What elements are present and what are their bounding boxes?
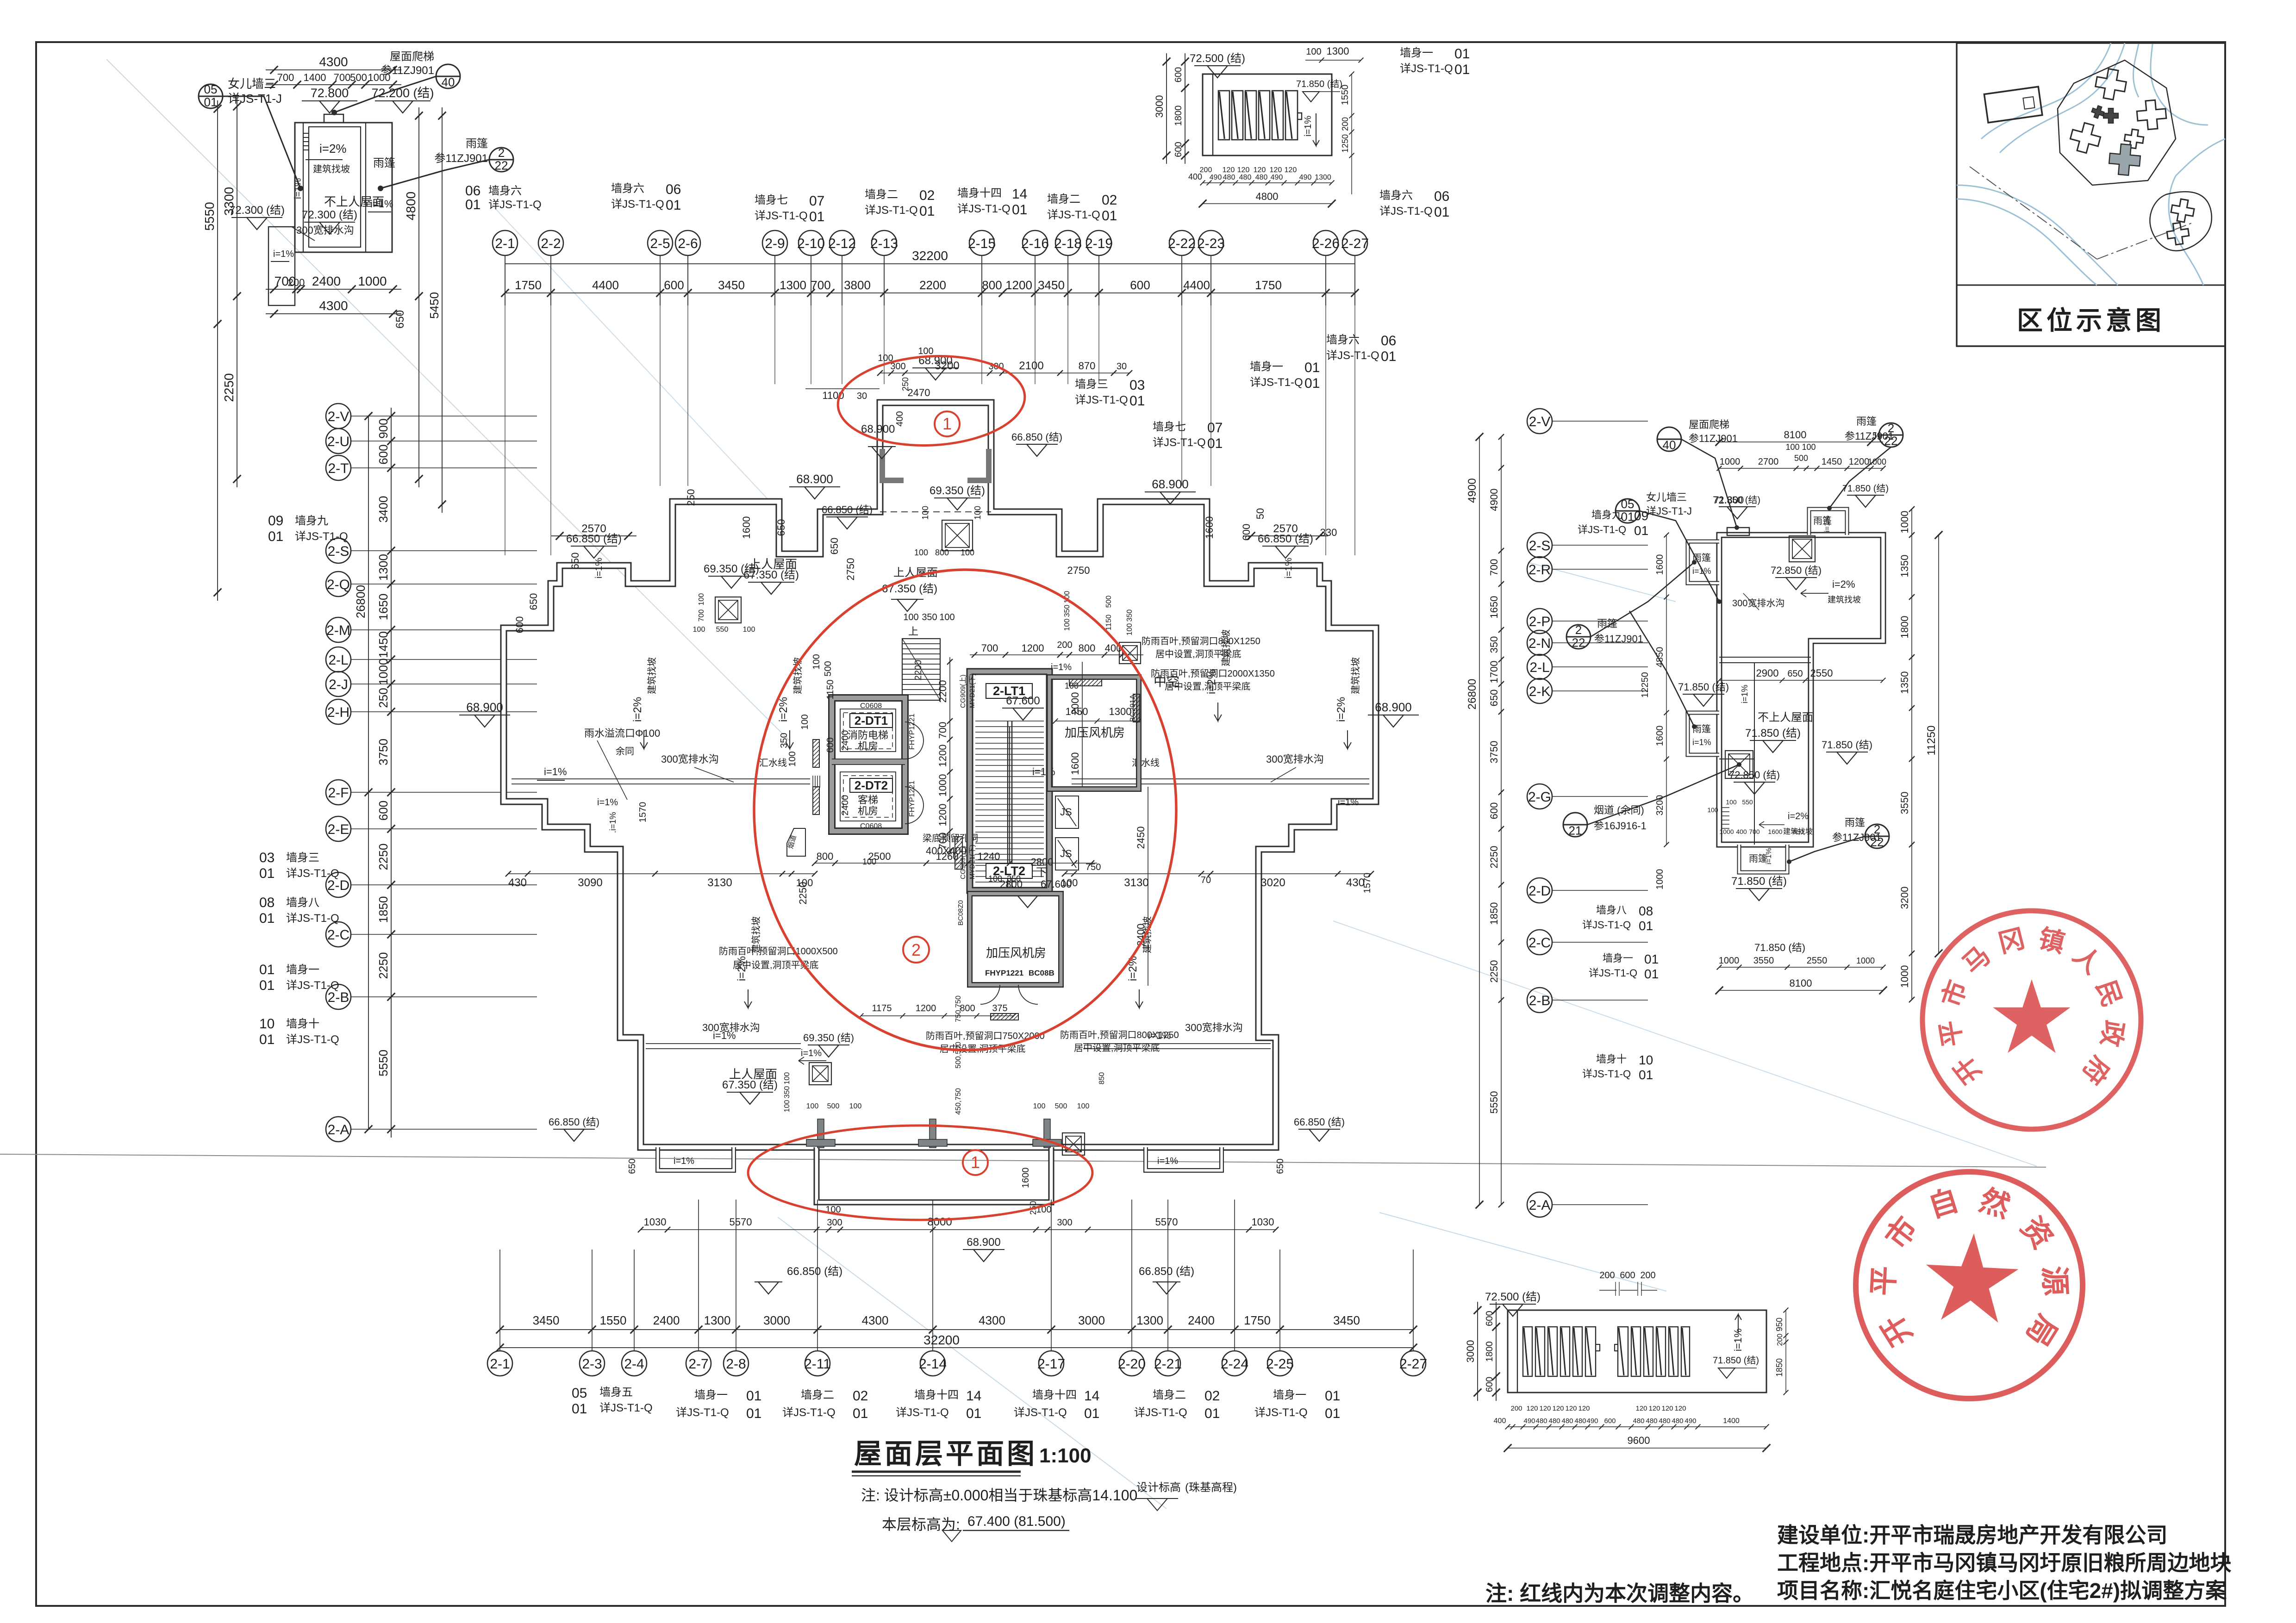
svg-text:2400: 2400 xyxy=(1188,1313,1215,1327)
svg-text:09: 09 xyxy=(1634,509,1648,523)
svg-text:100: 100 xyxy=(1707,806,1718,814)
svg-text:70: 70 xyxy=(1201,875,1211,885)
svg-text:120: 120 xyxy=(1674,1405,1686,1412)
svg-text:2-A: 2-A xyxy=(1529,1198,1551,1213)
svg-text:i=1%: i=1% xyxy=(1692,566,1711,576)
svg-text:2550: 2550 xyxy=(1807,956,1828,966)
svg-text:FHYP1221: FHYP1221 xyxy=(985,969,1023,977)
svg-text:120: 120 xyxy=(1565,1405,1577,1412)
svg-text:2-8: 2-8 xyxy=(726,1356,746,1372)
svg-text:详JS-T1-Q: 详JS-T1-Q xyxy=(286,979,339,992)
svg-text:100: 100 xyxy=(903,612,918,622)
svg-text:450,750: 450,750 xyxy=(955,1088,962,1115)
svg-text:2250: 2250 xyxy=(1488,960,1500,983)
svg-text:机房: 机房 xyxy=(858,740,878,752)
svg-text:2-U: 2-U xyxy=(327,434,349,449)
svg-text:2750: 2750 xyxy=(1067,565,1090,576)
svg-text:1300: 1300 xyxy=(780,278,806,292)
svg-text:2-1: 2-1 xyxy=(490,1356,510,1372)
svg-text:3130: 3130 xyxy=(1124,877,1148,889)
svg-text:1700: 1700 xyxy=(1488,661,1500,684)
svg-text:08: 08 xyxy=(259,895,275,910)
svg-text:i=1%: i=1% xyxy=(273,249,294,259)
svg-text:700: 700 xyxy=(1749,828,1760,835)
svg-text:CG909(上): CG909(上) xyxy=(959,674,967,708)
svg-text:120: 120 xyxy=(1648,1405,1660,1412)
svg-text:墙身一: 墙身一 xyxy=(286,964,319,976)
svg-text:120: 120 xyxy=(1526,1405,1538,1412)
svg-text:i=2%: i=2% xyxy=(319,142,347,155)
svg-text:墙身一: 墙身一 xyxy=(1273,1389,1306,1401)
svg-text:350: 350 xyxy=(783,1086,791,1099)
svg-text:墙身十四: 墙身十四 xyxy=(914,1389,959,1401)
svg-text:详JS-T1-Q: 详JS-T1-Q xyxy=(1582,919,1631,931)
svg-text:详JS-T1-Q: 详JS-T1-Q xyxy=(488,199,542,211)
svg-text:480: 480 xyxy=(1672,1417,1683,1425)
svg-text:350: 350 xyxy=(1063,605,1071,617)
svg-text:1450: 1450 xyxy=(1822,457,1842,467)
svg-text:01: 01 xyxy=(746,1388,761,1404)
svg-text:600: 600 xyxy=(1173,67,1184,82)
svg-text:650: 650 xyxy=(528,593,539,610)
svg-text:2200: 2200 xyxy=(937,680,948,703)
svg-text:2470: 2470 xyxy=(908,387,930,398)
svg-text:01: 01 xyxy=(919,204,935,219)
svg-text:100: 100 xyxy=(1063,619,1071,631)
svg-text:01: 01 xyxy=(1102,208,1117,224)
svg-text:1000: 1000 xyxy=(937,774,948,797)
svg-text:消防电梯: 消防电梯 xyxy=(848,729,888,741)
svg-text:详JS-T1-Q: 详JS-T1-Q xyxy=(1589,967,1637,979)
svg-text:i=1%: i=1% xyxy=(1765,848,1773,864)
svg-text:详JS-T1-Q: 详JS-T1-Q xyxy=(1379,205,1433,218)
svg-text:01: 01 xyxy=(1621,510,1635,523)
svg-text:墙身一: 墙身一 xyxy=(1250,361,1283,373)
svg-text:参11ZJ901: 参11ZJ901 xyxy=(434,152,488,165)
svg-text:200: 200 xyxy=(1776,1334,1784,1346)
svg-text:墙身一: 墙身一 xyxy=(1603,952,1633,964)
svg-text:100: 100 xyxy=(849,1102,862,1110)
svg-text:居中设置,洞顶平梁底: 居中设置,洞顶平梁底 xyxy=(1155,649,1242,659)
svg-text:11250: 11250 xyxy=(1925,726,1938,756)
svg-text:2-22: 2-22 xyxy=(1168,236,1196,251)
svg-text:800: 800 xyxy=(1079,642,1096,654)
svg-text:68.900: 68.900 xyxy=(466,700,503,714)
svg-text:2450: 2450 xyxy=(1135,827,1147,849)
svg-text:32200: 32200 xyxy=(912,249,948,263)
svg-text:5570: 5570 xyxy=(1155,1216,1178,1228)
svg-text:2-19: 2-19 xyxy=(1085,236,1113,251)
svg-text:2-V: 2-V xyxy=(1529,414,1551,429)
svg-text:2400: 2400 xyxy=(312,274,341,288)
svg-text:墙身十: 墙身十 xyxy=(286,1018,319,1030)
svg-text:i=2%: i=2% xyxy=(631,697,644,722)
svg-text:1240: 1240 xyxy=(978,851,1000,862)
svg-text:政: 政 xyxy=(2096,1019,2129,1049)
svg-text:480: 480 xyxy=(1561,1417,1573,1425)
svg-text:01: 01 xyxy=(853,1406,868,1421)
svg-text:2-N: 2-N xyxy=(1529,636,1551,651)
svg-text:01: 01 xyxy=(1644,967,1659,981)
svg-text:2-20: 2-20 xyxy=(1118,1356,1146,1372)
svg-text:i=1%: i=1% xyxy=(1051,662,1072,672)
svg-text:2-J: 2-J xyxy=(329,677,348,692)
svg-text:4300: 4300 xyxy=(862,1313,889,1327)
svg-text:详JS-T1-Q: 详JS-T1-Q xyxy=(755,210,808,222)
svg-text:03: 03 xyxy=(1129,378,1145,393)
svg-text:650: 650 xyxy=(394,310,406,329)
svg-text:3450: 3450 xyxy=(718,278,745,292)
svg-text:02: 02 xyxy=(853,1388,868,1404)
svg-text:详JS-T1-Q: 详JS-T1-Q xyxy=(1578,524,1626,535)
svg-text:3130: 3130 xyxy=(707,877,732,889)
svg-text:68.900: 68.900 xyxy=(796,472,833,486)
svg-text:1600: 1600 xyxy=(1655,554,1665,575)
svg-text:1850: 1850 xyxy=(376,896,390,923)
svg-text:1300: 1300 xyxy=(1109,706,1132,717)
svg-text:72.800: 72.800 xyxy=(311,86,349,100)
svg-text:2700: 2700 xyxy=(1758,457,1779,467)
svg-text:200: 200 xyxy=(1599,1270,1615,1281)
svg-text:01: 01 xyxy=(259,1032,275,1047)
svg-text:防雨百叶,预留洞口800X1250: 防雨百叶,预留洞口800X1250 xyxy=(1142,636,1260,647)
svg-text:2-23: 2-23 xyxy=(1197,236,1225,251)
svg-text:120: 120 xyxy=(1270,166,1282,174)
svg-text:71.850 (结): 71.850 (结) xyxy=(1713,1355,1759,1366)
svg-text:01: 01 xyxy=(1381,349,1396,364)
svg-text:1850: 1850 xyxy=(1775,1358,1784,1377)
svg-text:01: 01 xyxy=(259,911,275,926)
svg-text:3450: 3450 xyxy=(1333,1313,1360,1327)
svg-text:480: 480 xyxy=(1574,1417,1586,1425)
svg-text:墙身六: 墙身六 xyxy=(1326,334,1360,346)
svg-text:2200: 2200 xyxy=(913,660,923,681)
svg-text:14: 14 xyxy=(966,1388,981,1404)
svg-text:500: 500 xyxy=(1055,1102,1067,1110)
svg-text:参11ZJ901: 参11ZJ901 xyxy=(1689,433,1738,444)
svg-text:墙身八: 墙身八 xyxy=(1596,904,1627,916)
svg-text:i=1%: i=1% xyxy=(594,558,604,578)
svg-text:40: 40 xyxy=(1663,438,1676,452)
svg-text:详JS-T1-Q: 详JS-T1-Q xyxy=(1250,376,1303,389)
svg-text:工程地点:开平市马冈镇马冈圩原旧粮所周边地块: 工程地点:开平市马冈镇马冈圩原旧粮所周边地块 xyxy=(1777,1551,2231,1575)
svg-text:22: 22 xyxy=(495,158,508,172)
svg-text:详JS-T1-Q: 详JS-T1-Q xyxy=(1153,436,1206,449)
svg-text:2-1: 2-1 xyxy=(495,236,515,251)
svg-text:4800: 4800 xyxy=(1256,191,1279,202)
svg-text:02: 02 xyxy=(1102,193,1117,208)
svg-text:2-V: 2-V xyxy=(328,409,349,424)
svg-text:66.850 (结): 66.850 (结) xyxy=(549,1116,599,1128)
svg-text:480: 480 xyxy=(1646,1417,1657,1425)
svg-text:详JS-T1-Q: 详JS-T1-Q xyxy=(599,1402,653,1414)
svg-text:1300: 1300 xyxy=(1327,45,1349,57)
svg-text:700: 700 xyxy=(937,833,948,850)
svg-text:墙身十: 墙身十 xyxy=(1596,1053,1627,1065)
svg-text:2-6: 2-6 xyxy=(678,236,698,251)
svg-text:08: 08 xyxy=(1639,904,1653,918)
svg-text:雨篷: 雨篷 xyxy=(1845,817,1865,828)
svg-text:100: 100 xyxy=(811,654,822,669)
svg-text:600: 600 xyxy=(376,801,390,821)
svg-text:1:100: 1:100 xyxy=(1039,1444,1092,1467)
svg-text:2400: 2400 xyxy=(653,1313,680,1327)
svg-text:800: 800 xyxy=(817,851,834,862)
svg-text:72.850 (结): 72.850 (结) xyxy=(1771,565,1822,576)
svg-text:详JS-T1-Q: 详JS-T1-Q xyxy=(1254,1406,1308,1419)
svg-text:详JS-T1-Q: 详JS-T1-Q xyxy=(865,204,918,217)
svg-text:详JS-T1-Q: 详JS-T1-Q xyxy=(1047,209,1100,221)
svg-text:5550: 5550 xyxy=(202,202,217,230)
svg-text:32200: 32200 xyxy=(923,1333,960,1347)
svg-text:2-B: 2-B xyxy=(1529,993,1551,1008)
svg-text:1150: 1150 xyxy=(825,679,836,699)
svg-text:100: 100 xyxy=(973,506,982,520)
svg-text:68.900: 68.900 xyxy=(1152,477,1189,491)
svg-text:墙身八: 墙身八 xyxy=(286,896,319,909)
svg-text:i=1%: i=1% xyxy=(1740,684,1749,703)
svg-text:2-H: 2-H xyxy=(327,705,349,720)
svg-text:2-27: 2-27 xyxy=(1399,1356,1427,1372)
svg-text:4900: 4900 xyxy=(1488,489,1500,511)
svg-text:900: 900 xyxy=(376,418,390,438)
svg-text:800: 800 xyxy=(935,548,949,557)
svg-text:100: 100 xyxy=(1061,877,1078,889)
svg-text:100: 100 xyxy=(961,548,974,557)
svg-text:屋面爬梯: 屋面爬梯 xyxy=(1689,419,1729,430)
svg-text:墙身七: 墙身七 xyxy=(755,194,788,206)
svg-text:490: 490 xyxy=(1685,1417,1696,1425)
svg-text:墙身三: 墙身三 xyxy=(1075,378,1108,391)
svg-text:墙身九: 墙身九 xyxy=(295,515,328,527)
svg-text:3800: 3800 xyxy=(844,278,871,292)
svg-text:3020: 3020 xyxy=(1260,877,1285,889)
svg-text:2-B: 2-B xyxy=(328,990,349,1005)
svg-text:550: 550 xyxy=(716,626,729,634)
svg-text:01: 01 xyxy=(1325,1388,1340,1404)
svg-text:2100: 2100 xyxy=(1019,360,1043,372)
svg-text:5550: 5550 xyxy=(1488,1091,1500,1114)
svg-text:2-C: 2-C xyxy=(327,927,349,943)
svg-text:300: 300 xyxy=(1057,1218,1072,1228)
svg-text:墙身二: 墙身二 xyxy=(1153,1389,1186,1401)
svg-text:14: 14 xyxy=(1012,187,1027,202)
svg-text:2-L: 2-L xyxy=(1529,660,1549,675)
svg-text:950: 950 xyxy=(1775,1318,1784,1331)
svg-text:2-25: 2-25 xyxy=(1266,1356,1294,1372)
svg-text:480: 480 xyxy=(1659,1417,1670,1425)
svg-text:雨水溢流口Φ100: 雨水溢流口Φ100 xyxy=(584,728,660,739)
svg-text:C0608: C0608 xyxy=(860,822,882,830)
svg-text:屋面层平面图: 屋面层平面图 xyxy=(854,1438,1037,1469)
svg-text:600: 600 xyxy=(1485,1311,1495,1326)
svg-text:480: 480 xyxy=(1239,174,1252,181)
svg-text:650: 650 xyxy=(627,1158,637,1174)
svg-text:1000: 1000 xyxy=(1899,965,1910,988)
svg-text:JS: JS xyxy=(1060,848,1072,859)
svg-text:详JS-T1-Q: 详JS-T1-Q xyxy=(957,203,1011,215)
svg-text:详JS-T1-Q: 详JS-T1-Q xyxy=(782,1406,836,1419)
svg-text:1550: 1550 xyxy=(1340,85,1350,106)
svg-text:3000: 3000 xyxy=(1154,95,1165,118)
svg-text:2-4: 2-4 xyxy=(624,1356,644,1372)
svg-text:300宽排水沟: 300宽排水沟 xyxy=(1185,1022,1243,1033)
svg-text:1800: 1800 xyxy=(1485,1341,1495,1362)
svg-text:700: 700 xyxy=(937,722,948,739)
svg-text:490: 490 xyxy=(1586,1417,1598,1425)
svg-text:500: 500 xyxy=(350,72,367,83)
svg-text:700: 700 xyxy=(698,609,705,622)
svg-text:参16J916-1: 参16J916-1 xyxy=(1594,820,1647,832)
svg-text:4300: 4300 xyxy=(319,55,348,69)
svg-text:71.850 (结): 71.850 (结) xyxy=(1842,483,1889,494)
svg-text:67.600: 67.600 xyxy=(1006,695,1040,707)
svg-text:2-14: 2-14 xyxy=(919,1356,947,1372)
svg-text:1570: 1570 xyxy=(638,802,648,823)
svg-text:100: 100 xyxy=(787,751,798,766)
svg-text:01: 01 xyxy=(1434,205,1449,220)
svg-text:650: 650 xyxy=(775,519,787,536)
svg-text:2-27: 2-27 xyxy=(1341,236,1369,251)
svg-text:1000: 1000 xyxy=(1720,457,1741,467)
svg-text:650: 650 xyxy=(1275,1158,1285,1174)
svg-text:490: 490 xyxy=(1523,1417,1535,1425)
svg-text:300宽排水沟: 300宽排水沟 xyxy=(1266,753,1324,765)
svg-text:i=1%: i=1% xyxy=(370,198,393,210)
svg-text:05: 05 xyxy=(204,82,218,96)
svg-text:100: 100 xyxy=(862,857,876,866)
svg-text:上: 上 xyxy=(908,626,918,637)
svg-text:600: 600 xyxy=(1130,278,1150,292)
svg-text:4400: 4400 xyxy=(1183,278,1210,292)
svg-text:40: 40 xyxy=(442,75,455,89)
svg-text:i=1%: i=1% xyxy=(1303,116,1313,137)
svg-text:2-DT1: 2-DT1 xyxy=(855,714,888,728)
svg-text:源: 源 xyxy=(2037,1265,2072,1297)
svg-text:1750: 1750 xyxy=(515,278,542,292)
svg-text:3400: 3400 xyxy=(376,496,390,523)
svg-text:550: 550 xyxy=(1742,798,1753,806)
svg-text:06: 06 xyxy=(1434,189,1449,204)
svg-text:07: 07 xyxy=(809,193,824,209)
svg-text:1150: 1150 xyxy=(1105,615,1113,631)
svg-text:01: 01 xyxy=(1084,1406,1099,1421)
svg-text:2-5: 2-5 xyxy=(650,236,670,251)
svg-text:2-21: 2-21 xyxy=(1154,1356,1182,1372)
svg-text:100: 100 xyxy=(1726,798,1737,806)
svg-text:650: 650 xyxy=(829,538,840,555)
svg-text:1750: 1750 xyxy=(1244,1313,1271,1327)
svg-text:2200: 2200 xyxy=(919,278,946,292)
svg-text:100: 100 xyxy=(1033,1102,1046,1110)
svg-text:350: 350 xyxy=(1126,609,1134,622)
svg-text:700: 700 xyxy=(811,278,830,292)
svg-text:2: 2 xyxy=(1575,623,1582,637)
svg-text:10: 10 xyxy=(259,1016,275,1032)
svg-text:2-2: 2-2 xyxy=(541,236,561,251)
svg-text:480: 480 xyxy=(1255,174,1268,181)
svg-text:墙身十四: 墙身十四 xyxy=(1032,1389,1077,1401)
svg-text:490: 490 xyxy=(1271,174,1283,181)
svg-text:C0608: C0608 xyxy=(860,702,882,710)
svg-text:i=2%: i=2% xyxy=(1788,811,1809,821)
svg-text:5570: 5570 xyxy=(730,1216,752,1228)
svg-text:100: 100 xyxy=(1065,681,1079,690)
svg-text:注: 红线内为本次调整内容。: 注: 红线内为本次调整内容。 xyxy=(1485,1581,1754,1605)
svg-text:600: 600 xyxy=(664,278,684,292)
svg-text:2-24: 2-24 xyxy=(1221,1356,1248,1372)
svg-text:详JS-T1-J: 详JS-T1-J xyxy=(1646,505,1692,517)
svg-text:2-12: 2-12 xyxy=(828,236,856,251)
svg-text:01: 01 xyxy=(1325,1406,1340,1421)
svg-text:1570: 1570 xyxy=(1362,873,1373,894)
svg-text:12250: 12250 xyxy=(1640,672,1650,698)
svg-text:详JS-T1-Q: 详JS-T1-Q xyxy=(286,912,339,925)
svg-text:参11ZJ901: 参11ZJ901 xyxy=(381,64,434,77)
svg-text:JS: JS xyxy=(1060,806,1072,818)
svg-text:不上人屋面: 不上人屋面 xyxy=(1758,711,1813,724)
svg-text:600: 600 xyxy=(1173,142,1184,157)
svg-text:墙身七: 墙身七 xyxy=(1153,421,1186,433)
svg-text:2570: 2570 xyxy=(1273,522,1298,535)
svg-text:2800: 2800 xyxy=(1031,856,1054,868)
svg-text:项目名称:汇悦名庭住宅小区(住宅2#)拟调整方案: 项目名称:汇悦名庭住宅小区(住宅2#)拟调整方案 xyxy=(1777,1579,2227,1603)
svg-text:FHYP1221: FHYP1221 xyxy=(908,714,916,750)
svg-text:1000: 1000 xyxy=(358,274,387,288)
svg-text:30: 30 xyxy=(1117,361,1127,372)
svg-text:72.500 (结): 72.500 (结) xyxy=(1190,52,1245,65)
svg-text:50: 50 xyxy=(1254,508,1266,519)
svg-text:墙身一: 墙身一 xyxy=(1400,47,1433,59)
svg-text:700: 700 xyxy=(981,642,998,654)
svg-text:1200: 1200 xyxy=(1849,457,1870,467)
svg-text:66.850 (结): 66.850 (结) xyxy=(822,504,873,516)
svg-text:200: 200 xyxy=(1640,1270,1655,1281)
svg-text:1260: 1260 xyxy=(936,851,959,862)
svg-text:21: 21 xyxy=(1569,823,1582,837)
svg-text:1450: 1450 xyxy=(1066,706,1088,717)
svg-text:2-S: 2-S xyxy=(328,544,349,559)
svg-text:3090: 3090 xyxy=(578,877,602,889)
svg-text:480: 480 xyxy=(1223,174,1235,181)
svg-text:120: 120 xyxy=(1254,166,1266,174)
svg-text:1175: 1175 xyxy=(872,1003,892,1014)
svg-text:平: 平 xyxy=(1866,1265,1901,1297)
svg-text:2-D: 2-D xyxy=(1529,883,1551,899)
svg-text:250: 250 xyxy=(376,688,390,708)
svg-text:120: 120 xyxy=(1661,1405,1673,1412)
svg-text:330: 330 xyxy=(1320,527,1337,538)
svg-text:女儿墙三: 女儿墙三 xyxy=(228,77,276,91)
svg-text:3000: 3000 xyxy=(1465,1340,1476,1363)
svg-text:8100: 8100 xyxy=(1784,429,1807,441)
svg-text:69.350 (结): 69.350 (结) xyxy=(803,1032,854,1044)
svg-text:详JS-T1-Q: 详JS-T1-Q xyxy=(295,530,348,543)
svg-text:5550: 5550 xyxy=(376,1050,390,1076)
svg-text:350: 350 xyxy=(1488,636,1500,653)
svg-text:01: 01 xyxy=(572,1401,587,1417)
svg-text:2-D: 2-D xyxy=(327,878,349,893)
svg-text:2-13: 2-13 xyxy=(870,236,898,251)
svg-text:墙身六: 墙身六 xyxy=(611,182,644,195)
svg-text:2-Q: 2-Q xyxy=(327,577,350,592)
svg-text:2550: 2550 xyxy=(1810,667,1833,679)
svg-text:2-R: 2-R xyxy=(1529,562,1551,578)
svg-text:1000: 1000 xyxy=(1719,956,1740,966)
svg-text:100: 100 xyxy=(918,346,933,356)
svg-text:墙身九: 墙身九 xyxy=(1591,509,1622,521)
svg-text:600: 600 xyxy=(1488,802,1500,820)
